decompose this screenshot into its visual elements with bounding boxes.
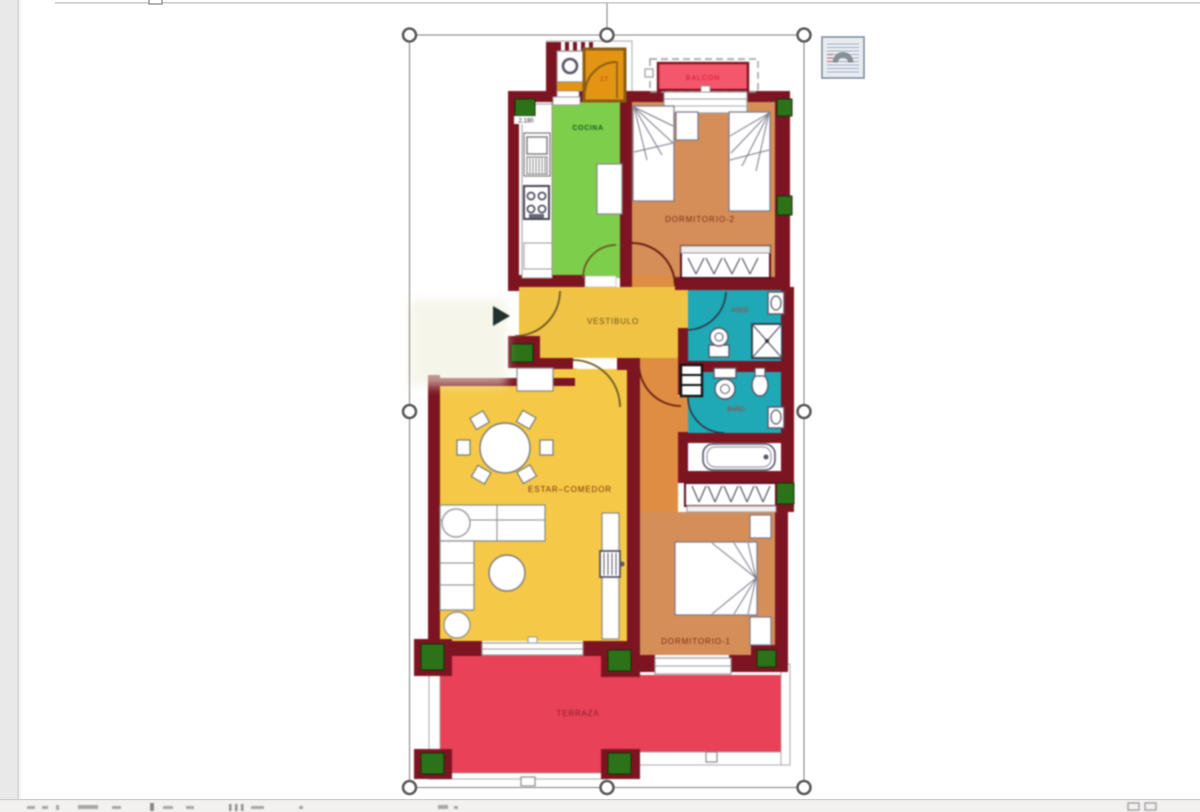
svg-text:ESTAR–COMEDOR: ESTAR–COMEDOR bbox=[528, 485, 612, 494]
svg-text:BALCON: BALCON bbox=[686, 75, 720, 82]
svg-text:COCINA: COCINA bbox=[572, 125, 603, 132]
svg-text:DORMITORIO-2: DORMITORIO-2 bbox=[665, 215, 735, 224]
svg-text:BAÑO: BAÑO bbox=[727, 406, 744, 413]
svg-text:VESTIBULO: VESTIBULO bbox=[587, 317, 639, 326]
svg-text:ASEO: ASEO bbox=[732, 308, 749, 314]
svg-text:J.T: J.T bbox=[600, 77, 609, 83]
svg-text:DORMITORIO-1: DORMITORIO-1 bbox=[661, 637, 731, 646]
svg-text:TERRAZA: TERRAZA bbox=[557, 709, 600, 718]
svg-text:2.180: 2.180 bbox=[518, 119, 534, 125]
